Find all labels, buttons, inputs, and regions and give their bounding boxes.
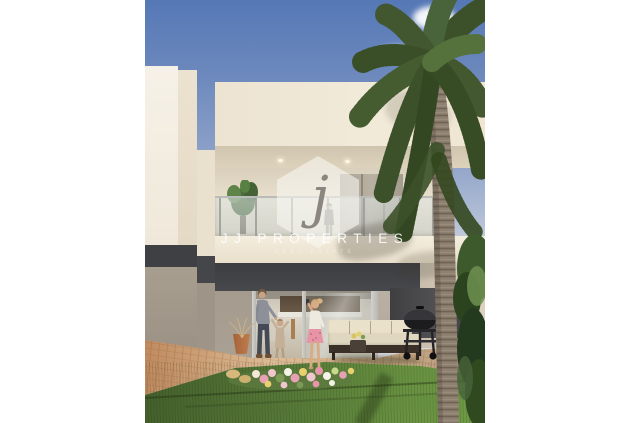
toddler (270, 316, 290, 362)
property-photo: j JJ PROPERTIES REAL ESTATE (145, 0, 485, 423)
letterbox-right (485, 0, 630, 423)
recessed-ground-wall (197, 283, 215, 358)
neighbour-wall-side (178, 70, 197, 245)
watermark-brand-text: JJ PROPERTIES (145, 231, 485, 246)
neighbour-wall-front (145, 66, 178, 245)
logo-letter-j: j (311, 170, 328, 226)
dried-plant (227, 316, 257, 338)
hedge-greenery (445, 228, 485, 423)
watermark-tagline-text: REAL ESTATE (145, 249, 485, 255)
letterbox-left (0, 0, 145, 423)
bar-stool (291, 319, 295, 339)
real-estate-photo-canvas: j JJ PROPERTIES REAL ESTATE (0, 0, 630, 423)
recessed-light (278, 159, 283, 162)
recessed-floor-band (197, 256, 215, 283)
